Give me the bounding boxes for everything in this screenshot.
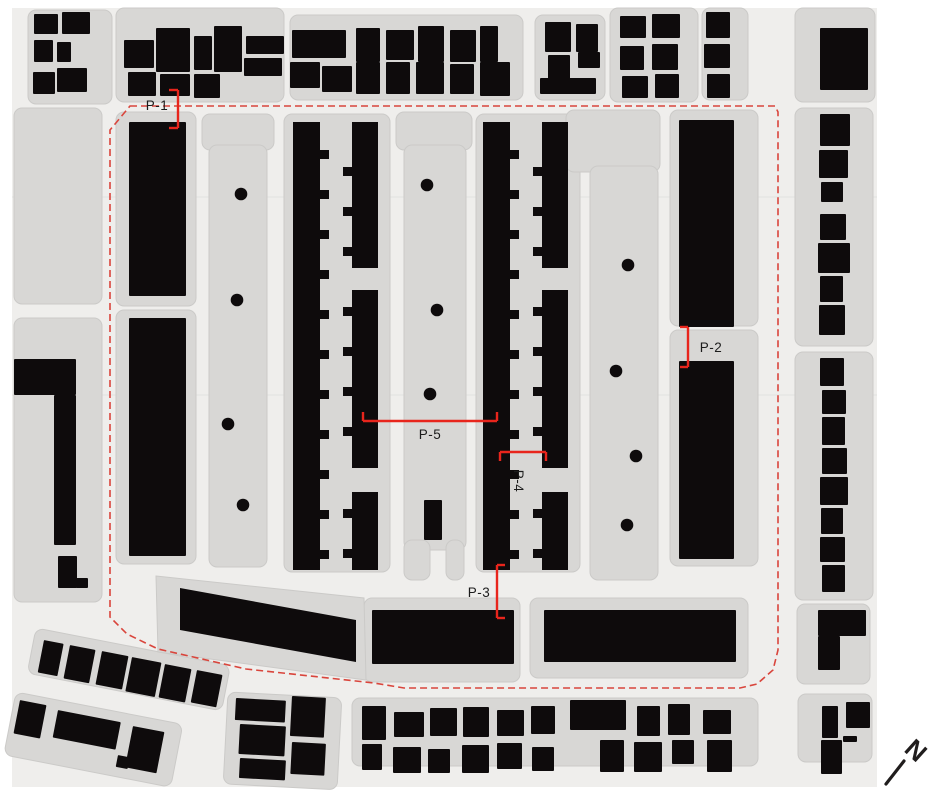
building-footprint xyxy=(540,78,596,94)
tree-dot xyxy=(235,188,248,201)
building-footprint xyxy=(668,704,690,735)
slab-tooth xyxy=(343,207,352,216)
slab-tooth xyxy=(320,230,329,239)
slab-tooth xyxy=(343,427,352,436)
building-footprint xyxy=(822,417,845,445)
building-footprint xyxy=(322,66,352,92)
slab-tooth xyxy=(533,347,542,356)
slab-tooth xyxy=(343,387,352,396)
slab-tooth xyxy=(533,307,542,316)
building-footprint xyxy=(128,72,156,96)
tree-dot xyxy=(421,179,434,192)
building-footprint xyxy=(129,122,186,296)
slab-tooth xyxy=(320,510,329,519)
building-footprint xyxy=(570,700,626,730)
slab-tooth xyxy=(510,430,519,439)
building-footprint xyxy=(393,747,421,773)
building-footprint xyxy=(620,16,646,38)
tree-dot xyxy=(431,304,444,317)
building-footprint xyxy=(637,706,660,736)
slab-tooth xyxy=(343,167,352,176)
building-footprint xyxy=(292,30,346,58)
parcel-block xyxy=(795,352,873,600)
building-footprint xyxy=(160,74,190,96)
building-footprint xyxy=(820,537,845,562)
tree-dot xyxy=(222,418,235,431)
tree-dot xyxy=(231,294,244,307)
slab-tooth xyxy=(343,509,352,518)
building-footprint xyxy=(76,578,88,588)
tree-dot xyxy=(237,499,250,512)
slab-tooth xyxy=(320,310,329,319)
building-footprint xyxy=(57,42,71,62)
housing-slab xyxy=(352,290,378,468)
slab-tooth xyxy=(510,390,519,399)
building-footprint xyxy=(707,740,732,772)
building-footprint xyxy=(62,12,90,34)
building-footprint xyxy=(822,565,845,592)
building-footprint xyxy=(846,702,870,728)
slab-tooth xyxy=(510,310,519,319)
slab-tooth xyxy=(510,150,519,159)
building-footprint xyxy=(820,28,868,90)
figure-ground-plan: P-1P-2P-3P-4P-5N xyxy=(0,0,933,793)
building-footprint xyxy=(450,30,476,62)
housing-slab xyxy=(542,290,568,468)
slab-tooth xyxy=(510,190,519,199)
building-footprint xyxy=(820,214,846,240)
slab-tooth xyxy=(533,247,542,256)
site-plan-map: P-1P-2P-3P-4P-5N xyxy=(0,0,933,793)
building-footprint xyxy=(820,477,848,505)
housing-slab xyxy=(293,122,320,570)
parcel-block xyxy=(14,108,102,304)
building-footprint xyxy=(430,708,457,736)
slab-tooth xyxy=(320,350,329,359)
building-footprint xyxy=(33,72,55,94)
slab-tooth xyxy=(533,207,542,216)
slab-tooth xyxy=(533,509,542,518)
parcel-block xyxy=(566,110,660,172)
building-footprint xyxy=(818,610,866,636)
building-footprint xyxy=(703,710,731,734)
housing-slab xyxy=(542,122,568,268)
housing-slab xyxy=(542,492,568,570)
building-footprint xyxy=(462,745,489,773)
slab-tooth xyxy=(533,549,542,558)
building-footprint xyxy=(246,36,284,54)
slab-tooth xyxy=(510,550,519,559)
housing-slab xyxy=(352,122,378,268)
slab-tooth xyxy=(320,430,329,439)
building-footprint xyxy=(480,26,498,62)
building-footprint xyxy=(548,55,570,79)
building-footprint xyxy=(418,26,444,62)
building-footprint xyxy=(531,706,555,734)
slab-tooth xyxy=(320,270,329,279)
parcel-block xyxy=(446,540,464,580)
building-footprint xyxy=(497,710,524,736)
building-footprint xyxy=(57,68,87,92)
tree-dot xyxy=(424,388,437,401)
building-footprint xyxy=(679,120,734,327)
building-footprint xyxy=(818,243,850,273)
building-footprint xyxy=(578,52,600,68)
slab-tooth xyxy=(320,390,329,399)
slab-tooth xyxy=(343,347,352,356)
building-footprint xyxy=(394,712,424,737)
slab-tooth xyxy=(320,550,329,559)
building-footprint xyxy=(428,749,450,773)
marker-label-p-4: P-4 xyxy=(511,470,526,493)
slab-tooth xyxy=(510,350,519,359)
building-footprint xyxy=(821,740,842,774)
marker-label-p-2: P-2 xyxy=(700,340,723,355)
slab-tooth xyxy=(533,167,542,176)
building-footprint xyxy=(544,610,736,662)
marker-label-p-5: P-5 xyxy=(419,427,442,442)
building-footprint xyxy=(679,361,734,559)
building-footprint xyxy=(424,500,442,540)
building-footprint xyxy=(356,28,380,62)
building-footprint xyxy=(238,724,286,756)
building-footprint xyxy=(386,62,410,94)
slab-tooth xyxy=(320,190,329,199)
parcel-block xyxy=(396,112,472,150)
building-footprint xyxy=(244,58,282,76)
building-footprint xyxy=(124,40,154,68)
building-footprint xyxy=(116,755,130,769)
tree-dot xyxy=(630,450,643,463)
building-footprint xyxy=(819,305,845,335)
building-footprint xyxy=(652,14,680,38)
building-footprint xyxy=(156,28,190,72)
building-footprint xyxy=(600,740,624,772)
building-footprint xyxy=(821,508,843,534)
building-footprint xyxy=(194,36,212,70)
building-footprint xyxy=(672,740,694,764)
building-footprint xyxy=(843,736,857,742)
slab-tooth xyxy=(510,230,519,239)
slab-tooth xyxy=(343,307,352,316)
slab-tooth xyxy=(320,470,329,479)
building-footprint xyxy=(820,276,843,302)
building-footprint xyxy=(822,448,847,474)
parcel-block xyxy=(404,145,466,550)
slab-tooth xyxy=(510,510,519,519)
housing-slab xyxy=(483,122,510,570)
building-footprint xyxy=(655,74,679,98)
building-footprint xyxy=(239,758,286,780)
building-footprint xyxy=(545,22,571,52)
slab-tooth xyxy=(320,150,329,159)
building-footprint xyxy=(820,358,844,386)
slab-tooth xyxy=(510,270,519,279)
building-footprint xyxy=(822,706,838,738)
building-footprint xyxy=(416,62,444,94)
building-footprint xyxy=(290,742,326,776)
building-footprint xyxy=(235,698,286,723)
parcel-block xyxy=(404,540,430,580)
building-footprint xyxy=(450,64,474,94)
building-footprint xyxy=(290,696,326,738)
building-footprint xyxy=(194,74,220,98)
building-footprint xyxy=(622,76,648,98)
building-footprint xyxy=(386,30,414,60)
tree-dot xyxy=(621,519,634,532)
building-footprint xyxy=(362,744,382,770)
building-footprint xyxy=(214,26,242,72)
building-footprint xyxy=(372,610,514,664)
building-footprint xyxy=(290,62,320,88)
tree-dot xyxy=(622,259,635,272)
building-footprint xyxy=(822,390,846,414)
building-footprint xyxy=(34,14,58,34)
building-footprint xyxy=(819,150,848,178)
building-footprint xyxy=(362,706,386,740)
north-arrow-line xyxy=(886,761,904,784)
building-footprint xyxy=(707,74,730,98)
building-footprint xyxy=(497,743,522,769)
building-footprint xyxy=(634,742,662,772)
housing-slab xyxy=(352,492,378,570)
building-footprint xyxy=(706,12,730,38)
building-footprint xyxy=(576,24,598,52)
slab-tooth xyxy=(343,247,352,256)
building-footprint xyxy=(54,395,76,545)
building-footprint xyxy=(14,359,76,395)
marker-label-p-1: P-1 xyxy=(146,98,169,113)
building-footprint xyxy=(58,556,77,588)
building-footprint xyxy=(818,636,840,670)
building-footprint xyxy=(821,182,843,202)
marker-label-p-3: P-3 xyxy=(468,585,491,600)
slab-tooth xyxy=(533,427,542,436)
parcel-block xyxy=(590,166,658,580)
slab-tooth xyxy=(533,387,542,396)
building-footprint xyxy=(704,44,730,68)
building-footprint xyxy=(532,747,554,771)
building-footprint xyxy=(34,40,53,62)
slab-tooth xyxy=(343,549,352,558)
building-footprint xyxy=(820,114,850,146)
tree-dot xyxy=(610,365,623,378)
building-footprint xyxy=(480,62,510,96)
building-footprint xyxy=(129,318,186,556)
building-footprint xyxy=(463,707,489,737)
building-footprint xyxy=(356,62,380,94)
building-footprint xyxy=(620,46,644,70)
building-footprint xyxy=(652,44,678,70)
